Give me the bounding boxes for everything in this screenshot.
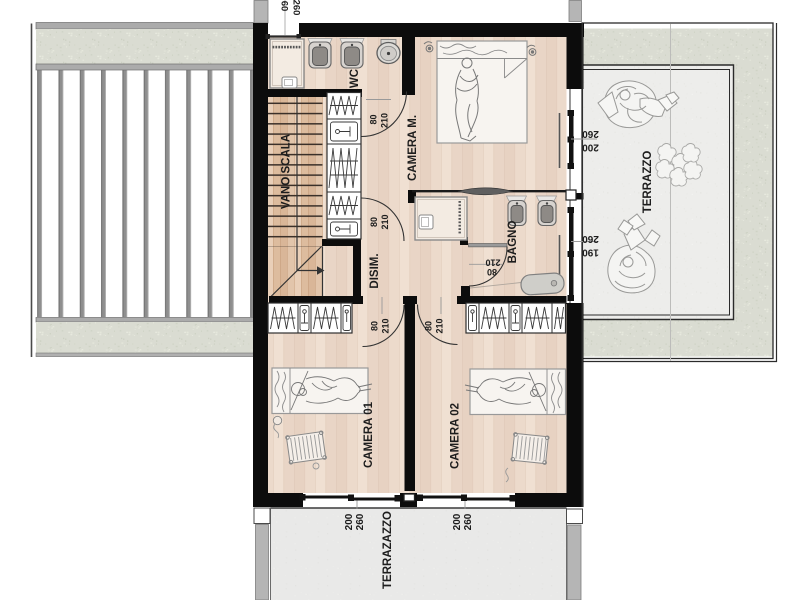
svg-text:200: 200 <box>582 142 599 153</box>
svg-text:TERRAZZO: TERRAZZO <box>642 151 654 214</box>
svg-text:VANO SCALA: VANO SCALA <box>281 134 293 209</box>
svg-text:210: 210 <box>435 318 445 333</box>
svg-text:210: 210 <box>485 258 500 268</box>
svg-text:BAGNO: BAGNO <box>507 221 519 264</box>
svg-text:210: 210 <box>380 113 390 128</box>
svg-text:210: 210 <box>380 214 390 229</box>
svg-text:80: 80 <box>369 217 379 227</box>
svg-text:60: 60 <box>279 1 290 12</box>
svg-text:TERRAZAZZO: TERRAZAZZO <box>382 511 394 589</box>
svg-text:260: 260 <box>582 128 599 139</box>
svg-text:CAMERA 02: CAMERA 02 <box>450 403 462 469</box>
svg-text:260: 260 <box>355 513 366 530</box>
svg-text:260: 260 <box>463 513 474 530</box>
svg-text:DISIM.: DISIM. <box>369 253 381 288</box>
svg-text:210: 210 <box>381 318 391 333</box>
svg-text:CAMERA M.: CAMERA M. <box>407 115 419 181</box>
svg-text:260: 260 <box>582 233 599 244</box>
svg-text:80: 80 <box>424 321 434 331</box>
svg-text:80: 80 <box>370 321 380 331</box>
svg-text:WC: WC <box>349 69 361 88</box>
svg-text:260: 260 <box>291 0 302 15</box>
svg-text:80: 80 <box>369 114 379 124</box>
svg-text:200: 200 <box>344 513 355 530</box>
svg-text:CAMERA 01: CAMERA 01 <box>363 401 375 468</box>
svg-text:200: 200 <box>452 513 463 530</box>
svg-text:80: 80 <box>487 267 497 277</box>
svg-text:190: 190 <box>582 247 599 258</box>
